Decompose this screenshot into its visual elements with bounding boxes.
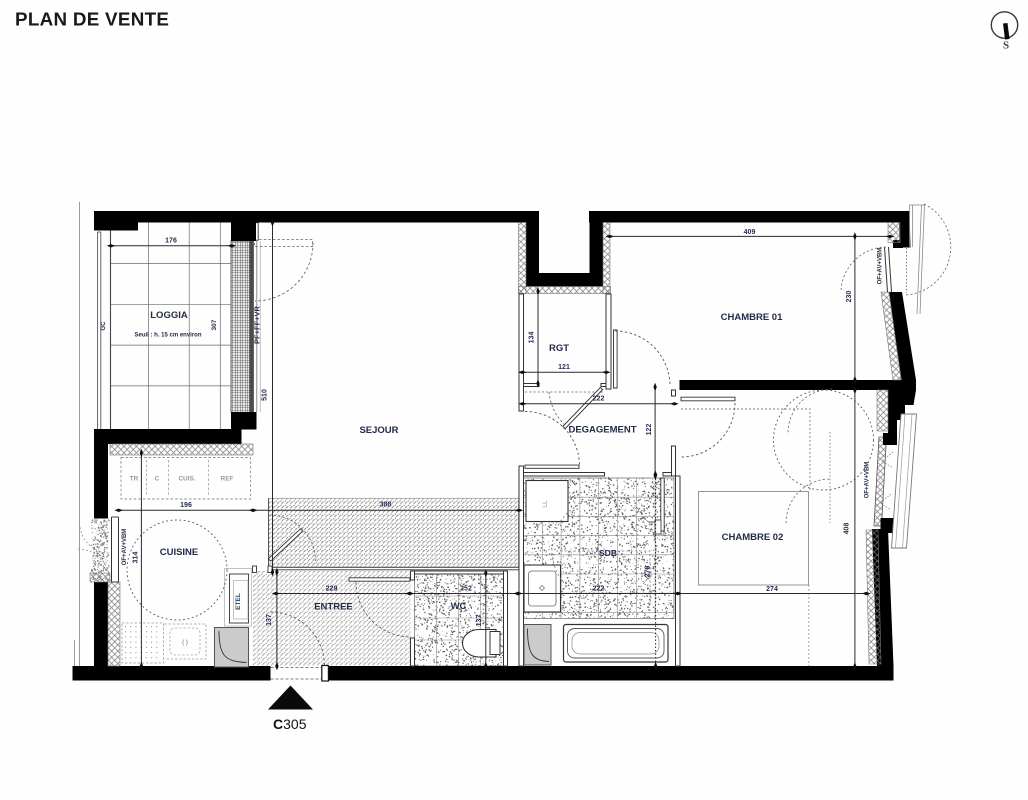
svg-text:307: 307 <box>211 319 218 330</box>
svg-text:196: 196 <box>180 502 192 509</box>
svg-text:PF+FF+VR: PF+FF+VR <box>253 305 262 344</box>
svg-text:( ): ( ) <box>182 640 188 646</box>
svg-text:S: S <box>1003 40 1009 52</box>
svg-text:222: 222 <box>593 396 605 403</box>
svg-text:409: 409 <box>744 229 756 236</box>
svg-text:ENTREE: ENTREE <box>314 602 353 613</box>
svg-text:OF+AV+VBM: OF+AV+VBM <box>122 529 128 566</box>
svg-text:122: 122 <box>646 424 653 436</box>
svg-text:388: 388 <box>380 502 392 509</box>
svg-text:137: 137 <box>476 615 483 627</box>
svg-text:C305: C305 <box>273 716 307 732</box>
svg-text:PLAN DE VENTE: PLAN DE VENTE <box>15 9 169 30</box>
svg-text:314: 314 <box>133 552 140 564</box>
svg-text:C: C <box>155 476 160 483</box>
svg-text:OF+AV+VBM: OF+AV+VBM <box>878 248 884 285</box>
svg-text:SEJOUR: SEJOUR <box>359 425 398 436</box>
svg-text:Seuil : h. 15 cm environ: Seuil : h. 15 cm environ <box>134 333 201 339</box>
svg-text:176: 176 <box>165 238 177 245</box>
svg-text:OF+AV+VBM: OF+AV+VBM <box>865 462 871 499</box>
svg-text:134: 134 <box>529 332 536 344</box>
svg-text:CHAMBRE 02: CHAMBRE 02 <box>722 532 784 543</box>
svg-text:LL: LL <box>543 500 549 508</box>
svg-text:408: 408 <box>844 523 851 535</box>
svg-text:137: 137 <box>266 614 273 626</box>
svg-text:WC: WC <box>451 601 467 612</box>
svg-text:229: 229 <box>326 586 338 593</box>
svg-text:121: 121 <box>558 364 570 371</box>
svg-text:REF: REF <box>221 476 234 483</box>
svg-text:252: 252 <box>460 586 472 593</box>
svg-text:510: 510 <box>262 389 269 401</box>
svg-text:222: 222 <box>593 586 605 593</box>
svg-text:SDB: SDB <box>599 548 617 558</box>
svg-text:274: 274 <box>766 586 778 593</box>
svg-text:CUIS.: CUIS. <box>178 476 196 483</box>
svg-text:GC: GC <box>101 321 107 331</box>
svg-text:CHAMBRE 01: CHAMBRE 01 <box>721 312 783 323</box>
svg-text:DEGAGEMENT: DEGAGEMENT <box>568 425 636 436</box>
svg-text:230: 230 <box>846 291 853 303</box>
svg-text:ETEL: ETEL <box>235 593 242 610</box>
svg-text:TR: TR <box>130 476 139 483</box>
svg-text:278: 278 <box>645 566 652 578</box>
svg-text:LOGGIA: LOGGIA <box>150 310 188 321</box>
svg-text:CUISINE: CUISINE <box>160 547 199 558</box>
svg-text:RGT: RGT <box>549 343 569 354</box>
